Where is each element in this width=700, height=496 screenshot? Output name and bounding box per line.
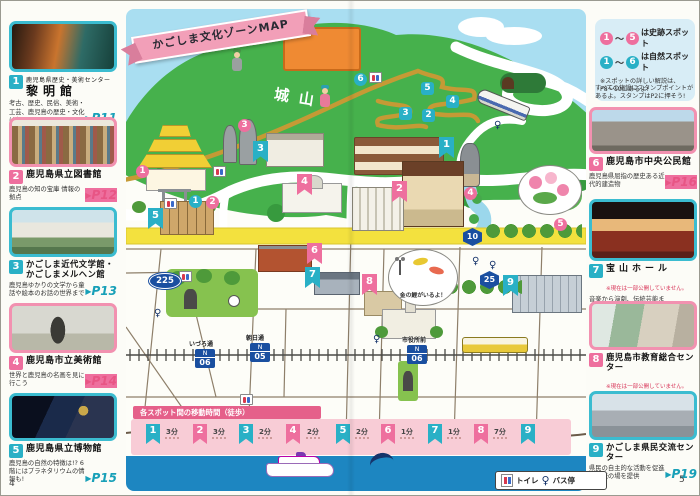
flower-icon xyxy=(529,176,542,189)
facility-photo-education-center xyxy=(589,301,697,350)
facility-card-1: 1 鹿児島県歴史・美術センター 黎明館 考古、歴史、民俗、美術・工芸、鹿児島の歴… xyxy=(9,21,117,125)
strip-stop-7: 7 xyxy=(428,424,442,444)
facility-name: 鹿児島市中央公民館 xyxy=(606,157,697,168)
map-nature-spot-5: 5 xyxy=(421,82,434,95)
nature-spot-legend: 1 〜 6 は自然スポット xyxy=(600,51,690,73)
historic-badge-icon: 1 xyxy=(600,32,613,45)
strip-time: 7分 xyxy=(493,427,507,439)
facility-photo-prefectural-museum xyxy=(9,393,117,441)
page-link: ▶P12 xyxy=(85,188,117,202)
strip-stop-6: 6 xyxy=(381,424,395,444)
koi-bubble-text: 金の鯉がいるよ！ xyxy=(397,293,449,300)
facility-photo-hozan-hall xyxy=(589,199,697,261)
toilet-icon xyxy=(369,72,382,83)
strip-stop-9: 9 xyxy=(521,424,535,444)
strip-stop-3: 3 xyxy=(239,424,253,444)
ferry-boat xyxy=(266,449,332,479)
nature-badge-icon: 1 xyxy=(600,56,613,69)
page-number-right: 5 xyxy=(679,475,685,485)
facility-photo-reimeikan xyxy=(9,21,117,72)
nature-badge-icon: 6 xyxy=(626,56,639,69)
facility-photo-community-hall xyxy=(589,107,697,154)
page-link: ▶P15 xyxy=(85,471,117,485)
map-nature-spot-2: 2 xyxy=(422,109,435,122)
flower-bubble xyxy=(518,165,582,215)
facility-desc: 鹿児島の知の宝庫 情報の拠点 xyxy=(9,186,85,202)
toilet-icon xyxy=(164,198,177,209)
bus-stop-icon: ♀ xyxy=(542,475,550,486)
toilet-icon xyxy=(240,394,253,405)
facility-name: 鹿児島市立美術館 xyxy=(26,356,117,367)
range-separator: 〜 xyxy=(615,32,624,45)
statue-monument xyxy=(223,125,237,163)
flower-icon xyxy=(557,184,569,196)
route-sign-225: 225 xyxy=(149,273,181,289)
tunnel xyxy=(500,73,546,93)
facility-desc: 鹿児島ゆかりの文学から童話や絵本のお話の世界まで xyxy=(9,282,85,298)
page-number-left: 4 xyxy=(9,479,15,489)
facility-number-badge: 3 xyxy=(9,260,23,274)
facility-name: 黎明館 xyxy=(26,84,117,98)
strip-time: 3分 xyxy=(212,427,226,439)
facility-name: 宝山ホール xyxy=(606,264,697,275)
facility-subtitle: 鹿児島県歴史・美術センター xyxy=(26,75,117,84)
map-nature-spot-3: 3 xyxy=(399,107,412,120)
building-central-temple xyxy=(402,161,464,227)
facility-number-badge: 6 xyxy=(589,157,603,171)
median-statue xyxy=(403,371,413,391)
brochure-spread: 1 鹿児島県歴史・美術センター 黎明館 考古、歴史、民俗、美術・工芸、鹿児島の歴… xyxy=(0,0,700,496)
flower-icon xyxy=(545,172,557,184)
park-statue xyxy=(184,289,197,309)
facility-card-3: 3 かごしま近代文学館・かごしまメルヘン館 鹿児島ゆかりの文学から童話や絵本のお… xyxy=(9,207,117,298)
strip-stop-8: 8 xyxy=(474,424,488,444)
bus-stop-icon: ♀ xyxy=(373,335,380,345)
facility-card-4: 4 鹿児島市立美術館 世界と鹿児島の名画を見に行こう ▶P14 xyxy=(9,303,117,388)
facility-card-5: 5 鹿児島県立博物館 鹿児島の自然の特徴は!? 6階にはプラネタリウムの情報も!… xyxy=(9,393,117,485)
historic-badge-icon: 5 xyxy=(626,32,639,45)
strip-time: 1分 xyxy=(400,427,414,439)
park-clock xyxy=(228,295,240,307)
strip-stop-4: 4 xyxy=(286,424,300,444)
building-city-art-museum xyxy=(282,183,342,213)
bus-stop-icon: ♀ xyxy=(472,257,479,267)
tram-stop-shiyakushomae: 市役所前 N06 xyxy=(402,335,427,364)
facility-name: かごしま県民交流センター xyxy=(606,443,697,463)
koi-speech-bubble: 金の鯉がいるよ！ xyxy=(388,249,458,306)
bus-stop-icon: ♀ xyxy=(154,309,161,319)
lamp-icon xyxy=(399,260,401,275)
facility-desc: 世界と鹿児島の名画を見に行こう xyxy=(9,372,85,388)
tram-stop-izurodori: いづろ通 N06 xyxy=(189,339,215,368)
toilet-icon xyxy=(213,166,226,177)
facility-photo-library xyxy=(9,117,117,167)
strip-time: 1分 xyxy=(447,427,461,439)
facility-number-badge: 8 xyxy=(589,353,603,367)
map-nature-spot-6: 6 xyxy=(354,73,367,86)
facility-card-6: 6 鹿児島市中央公民館 鹿児島県屈指の歴史ある近代的建造物 ▶P16 xyxy=(589,107,697,189)
facility-card-2: 2 鹿児島県立図書館 鹿児島の知の宝庫 情報の拠点 ▶P12 xyxy=(9,117,117,202)
facility-desc: 鹿児島県屈指の歴史ある近代的建造物 xyxy=(589,173,665,189)
closure-note: ※現在は一部公開していません。 xyxy=(606,384,687,390)
bus-stop-label: バス停 xyxy=(553,475,576,486)
facility-card-9: 9 かごしま県民交流センター 県民の自主的な活動を促進し交流の場を提供 ▶P19 xyxy=(589,391,697,481)
bus-stop-icon: ♀ xyxy=(489,261,496,271)
map-nature-spot-4: 4 xyxy=(446,95,459,108)
building-citizens-center xyxy=(512,275,582,313)
facility-photo-citizens-center xyxy=(589,391,697,440)
strip-time: 2分 xyxy=(258,427,272,439)
culture-zone-map: 城山 xyxy=(126,9,586,491)
facility-number-badge: 7 xyxy=(589,264,603,278)
closure-note: ※現在は一部公開していません。 xyxy=(606,286,687,292)
strip-stop-1: 1 xyxy=(146,424,160,444)
hiker-character xyxy=(318,85,332,109)
facility-number-badge: 2 xyxy=(9,170,23,184)
page-link: ▶P13 xyxy=(85,284,117,298)
facility-number-badge: 1 xyxy=(9,75,23,89)
facility-number-badge: 4 xyxy=(9,356,23,370)
facility-photo-art-museum xyxy=(9,303,117,353)
map-historic-spot-1: 1 xyxy=(136,165,149,178)
map-nature-spot-1: 1 xyxy=(189,195,202,208)
strip-time: 2分 xyxy=(306,427,320,439)
walking-time-strip: 各スポット間の移動時間（徒歩） 1 3分 2 3分 3 2分 4 2分 5 2分… xyxy=(131,406,579,458)
page-link: ▶P14 xyxy=(85,374,117,388)
tree-row xyxy=(484,223,582,239)
facility-desc: 鹿児島の自然の特徴は!? 6階にはプラネタリウムの情報も! xyxy=(9,460,85,485)
facility-number-badge: 9 xyxy=(589,443,603,457)
building-community-hall xyxy=(258,245,312,272)
red-koi-icon xyxy=(428,265,444,275)
strip-stop-2: 2 xyxy=(193,424,207,444)
median-green xyxy=(398,361,418,401)
bus-stop-icon: ♀ xyxy=(494,121,501,131)
stamp-note: すべての施設にスタンプポイントがあるよ。スタンプはP2に押そう! xyxy=(595,85,695,102)
strip-time: 2分 xyxy=(355,427,369,439)
page-fold xyxy=(347,1,355,495)
toilet-icon xyxy=(501,474,513,487)
toilet-label: トイレ xyxy=(516,475,539,486)
facility-photo-literature-museum xyxy=(9,207,117,257)
facility-name: 鹿児島県立図書館 xyxy=(26,170,117,181)
facility-name: かごしま近代文学館・かごしまメルヘン館 xyxy=(26,260,117,280)
facility-name: 鹿児島県立博物館 xyxy=(26,444,117,455)
building-literature-museum xyxy=(266,133,324,167)
page-link: ▶P16 xyxy=(665,175,697,189)
walking-time-title: 各スポット間の移動時間（徒歩） xyxy=(133,406,321,419)
map-historic-spot-4: 4 xyxy=(464,187,477,200)
leaf-icon xyxy=(533,192,557,204)
gold-koi-icon xyxy=(412,257,428,267)
hiker-character xyxy=(230,49,244,73)
facility-number-badge: 5 xyxy=(9,444,23,458)
tram-vehicle xyxy=(462,337,528,353)
tram-stop-asahidori: 朝日通 N05 xyxy=(246,333,270,362)
map-historic-spot-3: 3 xyxy=(238,119,251,132)
facility-name: 鹿児島市教育総合センター xyxy=(606,353,697,373)
historic-spot-legend: 1 〜 5 は史跡スポット xyxy=(600,27,690,49)
range-separator: 〜 xyxy=(615,56,624,69)
strip-time: 3分 xyxy=(165,427,179,439)
map-historic-spot-2: 2 xyxy=(206,196,219,209)
map-historic-spot-5: 5 xyxy=(554,218,567,231)
map-legend: トイレ ♀ バス停 xyxy=(495,471,607,490)
